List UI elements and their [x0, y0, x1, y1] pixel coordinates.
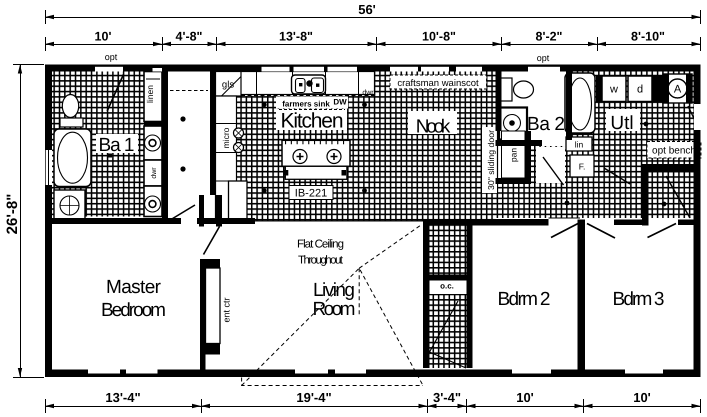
svg-text:A: A: [674, 84, 682, 96]
svg-text:opt: opt: [537, 53, 550, 63]
svg-text:30" sliding door: 30" sliding door: [486, 130, 496, 190]
svg-text:opt: opt: [105, 52, 118, 62]
svg-text:13'-8": 13'-8": [279, 30, 313, 44]
svg-text:lin: lin: [575, 140, 584, 150]
svg-text:F.: F.: [579, 162, 586, 172]
svg-text:Bedroom: Bedroom: [101, 300, 166, 321]
svg-text:Utl: Utl: [610, 113, 633, 134]
svg-text:IB-221: IB-221: [295, 188, 327, 200]
svg-text:Kitchen: Kitchen: [281, 110, 344, 133]
svg-text:10': 10': [633, 390, 651, 405]
svg-text:farmers sink: farmers sink: [282, 100, 330, 109]
svg-text:26'-8": 26'-8": [4, 194, 21, 235]
svg-text:w: w: [609, 84, 618, 96]
svg-text:56': 56': [358, 2, 376, 17]
svg-text:10'-8": 10'-8": [422, 30, 456, 44]
svg-text:Bdrm 3: Bdrm 3: [613, 289, 665, 310]
svg-text:Bdrm 2: Bdrm 2: [498, 289, 551, 310]
svg-text:opt bench: opt bench: [652, 146, 696, 157]
svg-text:ent ctr: ent ctr: [222, 297, 232, 322]
svg-text:pan: pan: [509, 148, 519, 162]
svg-text:dwr: dwr: [362, 89, 374, 97]
svg-text:8'-2": 8'-2": [536, 30, 563, 44]
svg-text:10': 10': [95, 30, 112, 44]
svg-text:Flat Ceiling: Flat Ceiling: [297, 239, 344, 251]
svg-text:Nook: Nook: [416, 117, 451, 138]
svg-text:13'-4": 13'-4": [105, 390, 140, 405]
svg-text:dwr: dwr: [150, 167, 158, 179]
svg-text:Master: Master: [106, 277, 162, 298]
svg-text:Ba 2: Ba 2: [527, 114, 565, 135]
svg-text:8'-10": 8'-10": [631, 30, 665, 44]
svg-text:4'-8": 4'-8": [176, 30, 203, 44]
svg-text:Throughout: Throughout: [298, 255, 344, 267]
svg-text:o.c.: o.c.: [440, 282, 454, 291]
svg-text:d: d: [637, 84, 643, 96]
svg-text:gls: gls: [222, 80, 234, 91]
svg-text:Living: Living: [313, 280, 355, 301]
svg-text:linen: linen: [145, 85, 155, 103]
svg-text:10': 10': [516, 390, 534, 405]
svg-text:micro: micro: [221, 127, 231, 148]
svg-text:19'-4": 19'-4": [296, 390, 331, 405]
svg-text:3'-4": 3'-4": [433, 390, 461, 405]
svg-text:Room: Room: [313, 299, 356, 320]
svg-text:Ba 1: Ba 1: [99, 135, 135, 156]
svg-text:DW: DW: [333, 98, 347, 107]
svg-text:craftsman wainscot: craftsman wainscot: [397, 78, 479, 89]
